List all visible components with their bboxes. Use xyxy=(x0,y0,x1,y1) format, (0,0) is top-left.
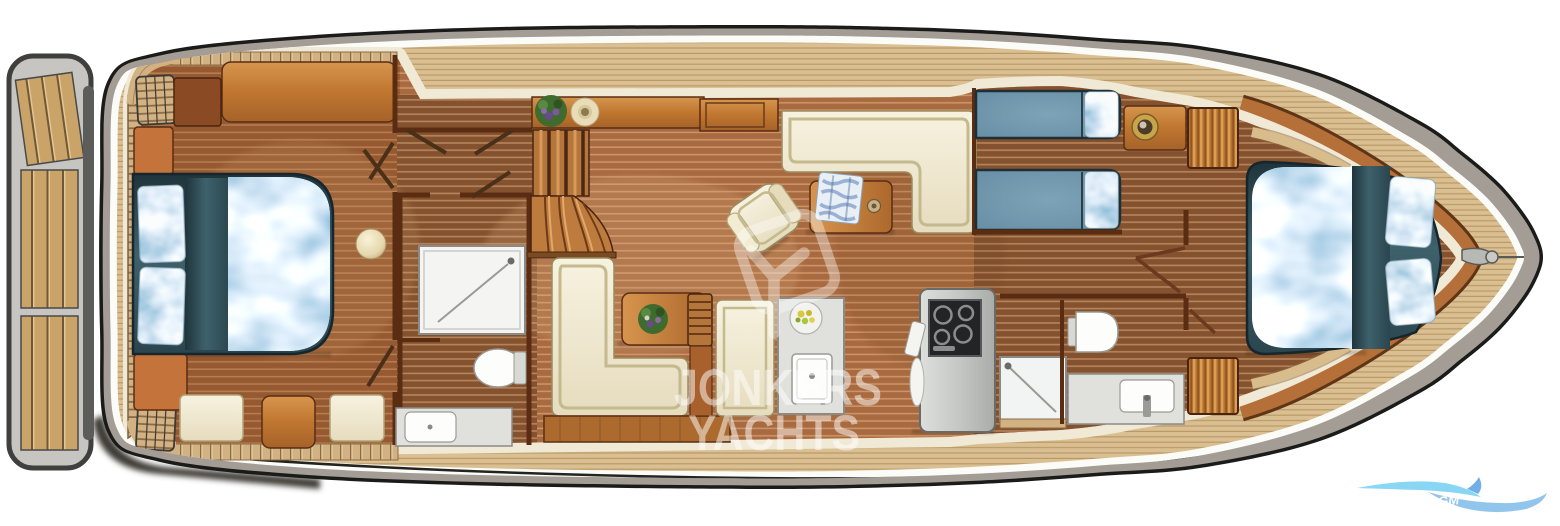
svg-text:GM: GM xyxy=(1438,492,1461,509)
svg-text:YACHTS: YACHTS xyxy=(688,405,860,461)
